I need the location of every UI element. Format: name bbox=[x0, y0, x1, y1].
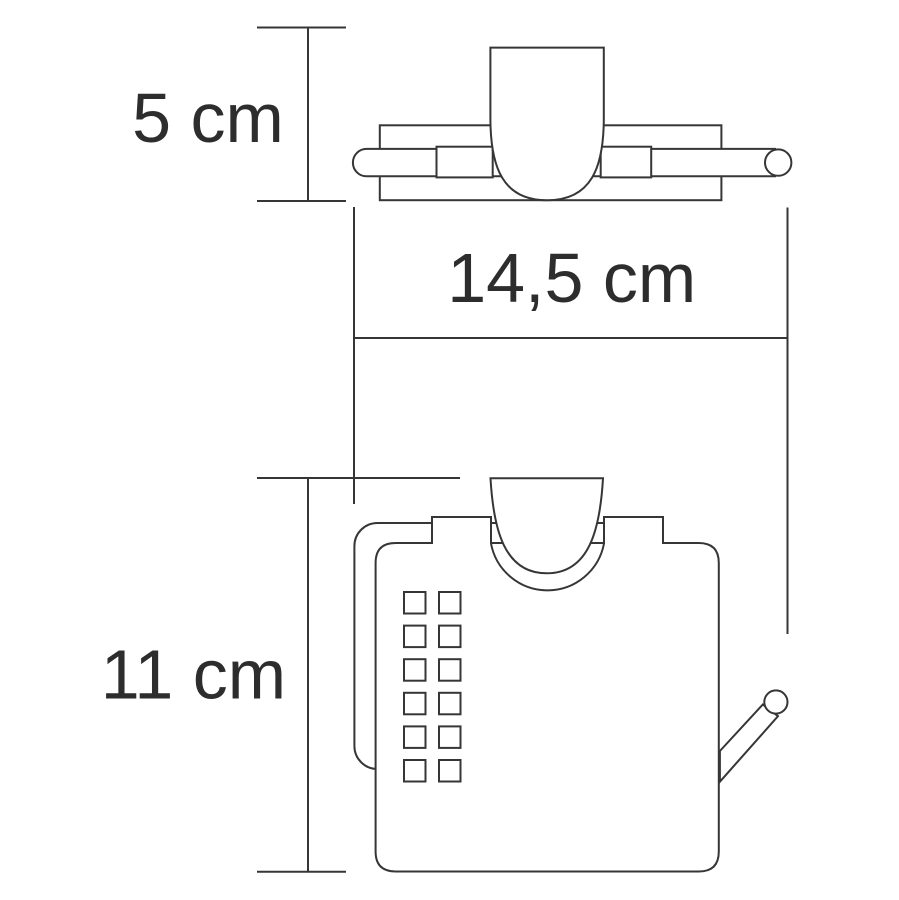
svg-text:5 cm: 5 cm bbox=[132, 79, 284, 157]
svg-text:14,5 cm: 14,5 cm bbox=[447, 239, 696, 317]
svg-text:11 cm: 11 cm bbox=[101, 636, 286, 714]
